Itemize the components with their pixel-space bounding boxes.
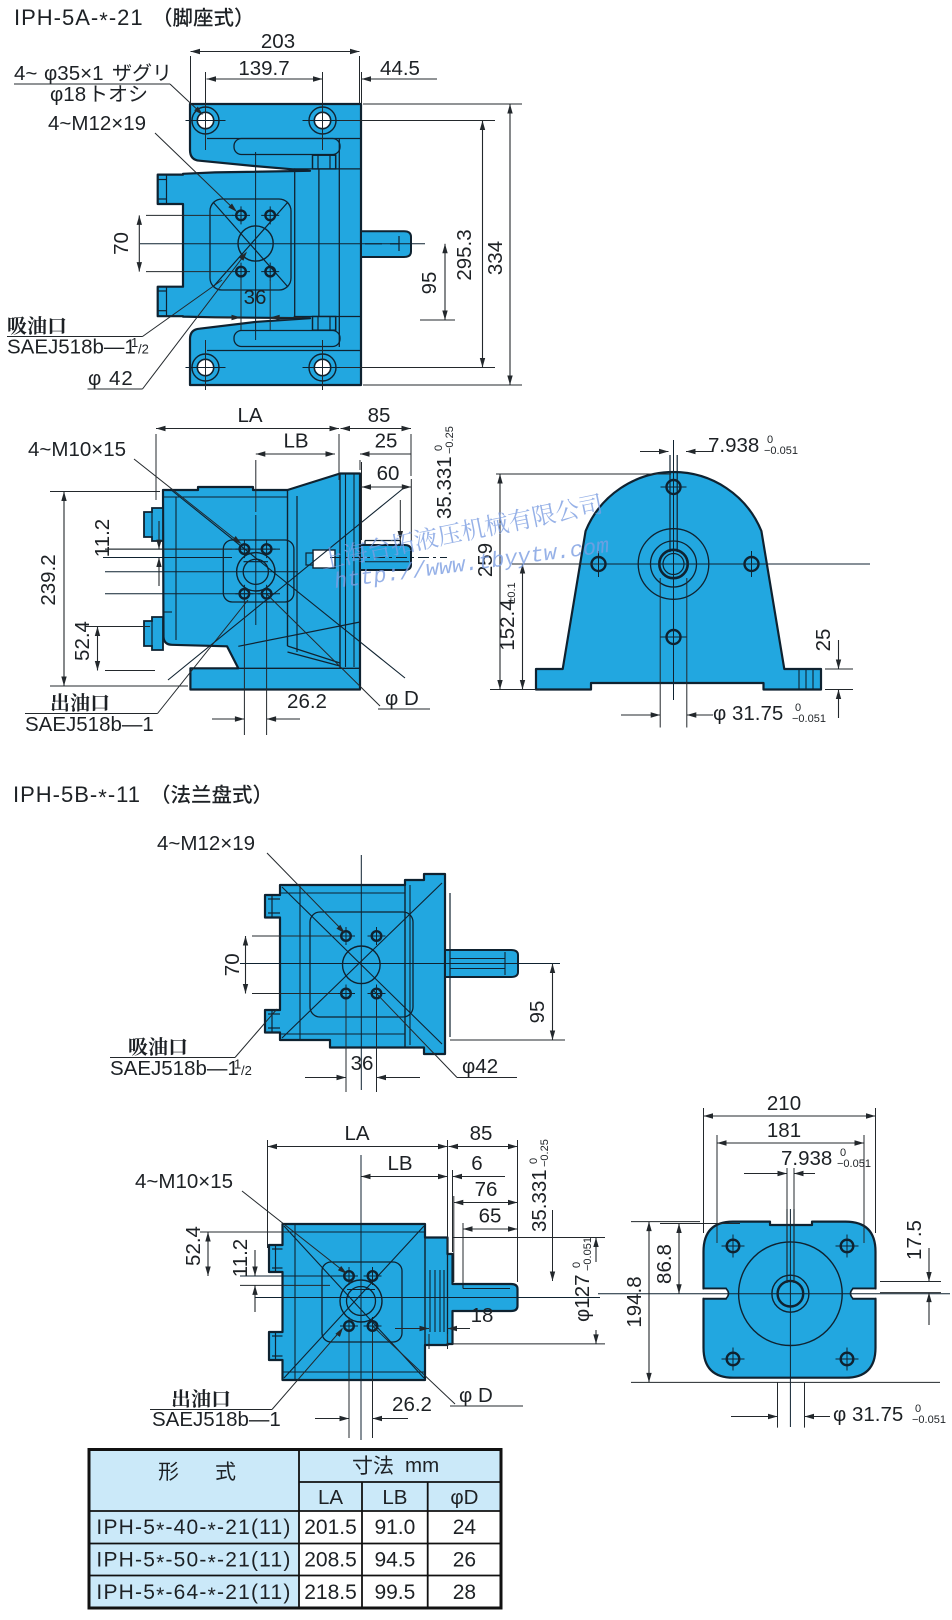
- svg-text:70: 70: [221, 953, 244, 976]
- svg-text:95: 95: [418, 272, 441, 295]
- svg-text:φ127: φ127: [571, 1275, 594, 1323]
- svg-text:−0.051: −0.051: [582, 1237, 594, 1271]
- svg-text:11.2: 11.2: [91, 519, 114, 557]
- svg-text:−0.051: −0.051: [792, 713, 826, 725]
- svg-text:SAEJ518b—1: SAEJ518b—1: [110, 1057, 239, 1080]
- svg-text:181: 181: [767, 1119, 801, 1142]
- svg-text:99.5: 99.5: [374, 1581, 415, 1604]
- svg-text:SAEJ518b—1: SAEJ518b—1: [25, 713, 154, 736]
- svg-text:52.4: 52.4: [182, 1226, 205, 1266]
- svg-text:SAEJ518b—1: SAEJ518b—1: [152, 1408, 281, 1431]
- svg-text:4~M10×15: 4~M10×15: [135, 1170, 233, 1193]
- svg-text:210: 210: [767, 1092, 801, 1115]
- svg-text:LA: LA: [344, 1122, 369, 1145]
- svg-text:218.5: 218.5: [304, 1581, 357, 1604]
- svg-text:95: 95: [526, 1001, 549, 1024]
- svg-text:φ 31.75: φ 31.75: [713, 702, 783, 725]
- svg-text:36: 36: [244, 286, 267, 309]
- svg-text:φ18: φ18: [50, 83, 86, 106]
- svg-text:35.331: 35.331: [528, 1169, 551, 1232]
- svg-text:76: 76: [475, 1178, 498, 1201]
- svg-text:60: 60: [377, 462, 400, 485]
- svg-text:139.7: 139.7: [238, 57, 289, 80]
- svg-text:91.0: 91.0: [374, 1516, 415, 1539]
- svg-text:7.938: 7.938: [708, 434, 759, 457]
- svg-text:4~: 4~: [14, 62, 37, 85]
- svg-text:17.5: 17.5: [903, 1220, 926, 1260]
- svg-text:IPH-5*-50-*-21(11): IPH-5*-50-*-21(11): [96, 1549, 291, 1575]
- svg-text:4~M12×19: 4~M12×19: [157, 832, 255, 855]
- svg-text:7.938: 7.938: [781, 1147, 832, 1170]
- svg-text:SAEJ518b—1: SAEJ518b—1: [7, 336, 136, 359]
- svg-text:334: 334: [484, 241, 507, 275]
- svg-text:94.5: 94.5: [374, 1549, 415, 1572]
- svg-text:18: 18: [471, 1304, 494, 1327]
- svg-text:IPH-5*-40-*-21(11): IPH-5*-40-*-21(11): [96, 1516, 291, 1542]
- svg-text:152.4: 152.4: [496, 599, 519, 650]
- svg-text:208.5: 208.5: [304, 1549, 357, 1572]
- svg-text:LB: LB: [387, 1152, 412, 1175]
- svg-text:LB: LB: [283, 430, 308, 453]
- svg-text:28: 28: [453, 1581, 476, 1604]
- svg-text:4~M10×15: 4~M10×15: [28, 438, 126, 461]
- svg-text:52.4: 52.4: [71, 621, 94, 661]
- svg-text:LB: LB: [382, 1486, 407, 1509]
- svg-text:IPH-5A-*-21: IPH-5A-*-21: [14, 5, 144, 33]
- svg-text:φ 42: φ 42: [88, 367, 134, 390]
- svg-text:−0.25: −0.25: [539, 1139, 551, 1167]
- svg-text:6: 6: [471, 1152, 482, 1175]
- svg-text:65: 65: [479, 1205, 502, 1228]
- svg-text:IPH-5B-*-11: IPH-5B-*-11: [13, 782, 141, 810]
- svg-text:24: 24: [453, 1516, 477, 1539]
- svg-text:194.8: 194.8: [623, 1276, 646, 1327]
- svg-text:mm: mm: [405, 1454, 439, 1477]
- svg-text:/2: /2: [241, 1063, 252, 1078]
- svg-text:/2: /2: [138, 342, 149, 357]
- svg-text:LA: LA: [237, 404, 262, 427]
- svg-text:−0.051: −0.051: [912, 1414, 946, 1426]
- svg-text:−0.051: −0.051: [837, 1158, 871, 1170]
- svg-text:φ42: φ42: [462, 1055, 498, 1078]
- svg-text:IPH-5*-64-*-21(11): IPH-5*-64-*-21(11): [96, 1581, 291, 1607]
- svg-text:44.5: 44.5: [380, 57, 420, 80]
- svg-text:35.331: 35.331: [433, 456, 456, 519]
- svg-text:−0.051: −0.051: [764, 445, 798, 457]
- svg-text:25: 25: [812, 629, 835, 652]
- svg-text:φ D: φ D: [459, 1384, 493, 1407]
- svg-text:25: 25: [375, 430, 398, 453]
- svg-text:70: 70: [110, 232, 133, 255]
- svg-text:201.5: 201.5: [304, 1516, 357, 1539]
- svg-text:φD: φD: [450, 1486, 478, 1509]
- svg-text:4~M12×19: 4~M12×19: [48, 112, 146, 135]
- svg-text:φ35×1: φ35×1: [44, 62, 103, 85]
- svg-text:±0.1: ±0.1: [506, 582, 518, 603]
- svg-text:φ 31.75: φ 31.75: [833, 1403, 903, 1426]
- svg-text:85: 85: [368, 404, 391, 427]
- svg-text:φ D: φ D: [385, 687, 419, 710]
- svg-text:85: 85: [470, 1122, 493, 1145]
- svg-text:203: 203: [261, 30, 295, 53]
- svg-text:295.3: 295.3: [453, 229, 476, 280]
- svg-text:36: 36: [351, 1052, 374, 1075]
- svg-text:26.2: 26.2: [287, 690, 327, 713]
- svg-text:26.2: 26.2: [392, 1393, 432, 1416]
- svg-text:26: 26: [453, 1549, 476, 1572]
- svg-text:11.2: 11.2: [229, 1239, 252, 1277]
- svg-text:LA: LA: [318, 1486, 343, 1509]
- svg-text:−0.25: −0.25: [444, 426, 456, 454]
- svg-text:86.8: 86.8: [653, 1244, 676, 1284]
- svg-text:239.2: 239.2: [37, 554, 60, 605]
